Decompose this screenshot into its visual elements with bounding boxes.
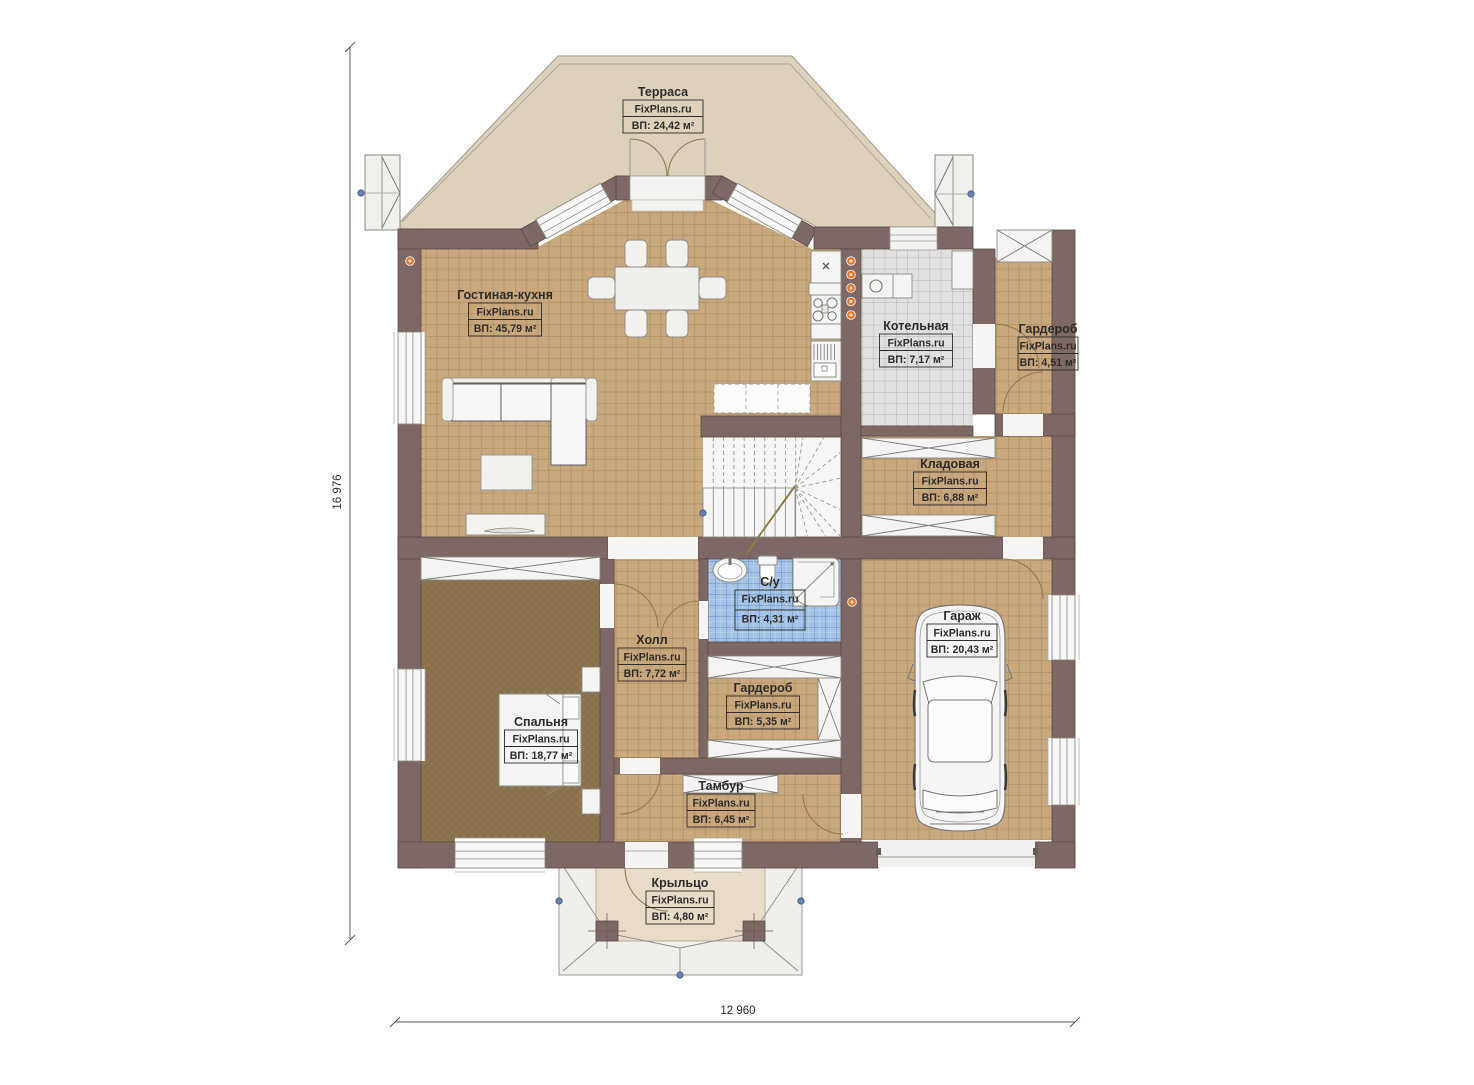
svg-text:FixPlans.ru: FixPlans.ru xyxy=(634,103,691,115)
svg-text:FixPlans.ru: FixPlans.ru xyxy=(623,651,680,663)
svg-text:FixPlans.ru: FixPlans.ru xyxy=(692,797,749,809)
svg-text:FixPlans.ru: FixPlans.ru xyxy=(512,733,569,745)
svg-text:ВП: 5,35 м²: ВП: 5,35 м² xyxy=(735,716,792,728)
svg-text:С/у: С/у xyxy=(760,575,780,589)
svg-text:FixPlans.ru: FixPlans.ru xyxy=(741,593,798,605)
svg-text:FixPlans.ru: FixPlans.ru xyxy=(651,894,708,906)
svg-text:ВП: 20,43 м²: ВП: 20,43 м² xyxy=(931,644,994,656)
svg-text:FixPlans.ru: FixPlans.ru xyxy=(921,475,978,487)
svg-text:FixPlans.ru: FixPlans.ru xyxy=(476,306,533,318)
svg-text:ВП: 4,80 м²: ВП: 4,80 м² xyxy=(652,911,709,923)
svg-text:16 976: 16 976 xyxy=(332,474,344,509)
svg-text:Гардероб: Гардероб xyxy=(1018,322,1077,336)
svg-text:ВП: 7,72 м²: ВП: 7,72 м² xyxy=(624,668,681,680)
svg-text:ВП: 4,31 м²: ВП: 4,31 м² xyxy=(742,613,799,625)
svg-text:Терраса: Терраса xyxy=(638,85,689,99)
svg-text:Кладовая: Кладовая xyxy=(920,457,980,471)
svg-text:Спальня: Спальня xyxy=(514,715,568,729)
svg-text:Тамбур: Тамбур xyxy=(698,779,744,793)
svg-text:FixPlans.ru: FixPlans.ru xyxy=(1019,340,1076,352)
svg-text:FixPlans.ru: FixPlans.ru xyxy=(933,627,990,639)
svg-text:Холл: Холл xyxy=(636,633,667,647)
svg-text:ВП: 7,17 м²: ВП: 7,17 м² xyxy=(888,354,945,366)
svg-text:ВП: 45,79 м²: ВП: 45,79 м² xyxy=(474,323,537,335)
svg-text:Гардероб: Гардероб xyxy=(733,681,792,695)
svg-text:12 960: 12 960 xyxy=(720,1005,755,1017)
svg-text:ВП: 18,77 м²: ВП: 18,77 м² xyxy=(510,750,573,762)
svg-text:ВП: 6,45 м²: ВП: 6,45 м² xyxy=(693,814,750,826)
svg-text:Гостиная-кухня: Гостиная-кухня xyxy=(457,288,553,302)
svg-text:Крыльцо: Крыльцо xyxy=(652,876,709,890)
svg-text:Котельная: Котельная xyxy=(883,319,948,333)
svg-text:ВП: 6,88 м²: ВП: 6,88 м² xyxy=(922,492,979,504)
svg-text:ВП: 4,51 м²: ВП: 4,51 м² xyxy=(1020,357,1077,369)
svg-text:ВП: 24,42 м²: ВП: 24,42 м² xyxy=(632,120,695,132)
svg-text:FixPlans.ru: FixPlans.ru xyxy=(734,699,791,711)
svg-text:Гараж: Гараж xyxy=(943,609,980,623)
svg-text:FixPlans.ru: FixPlans.ru xyxy=(887,337,944,349)
